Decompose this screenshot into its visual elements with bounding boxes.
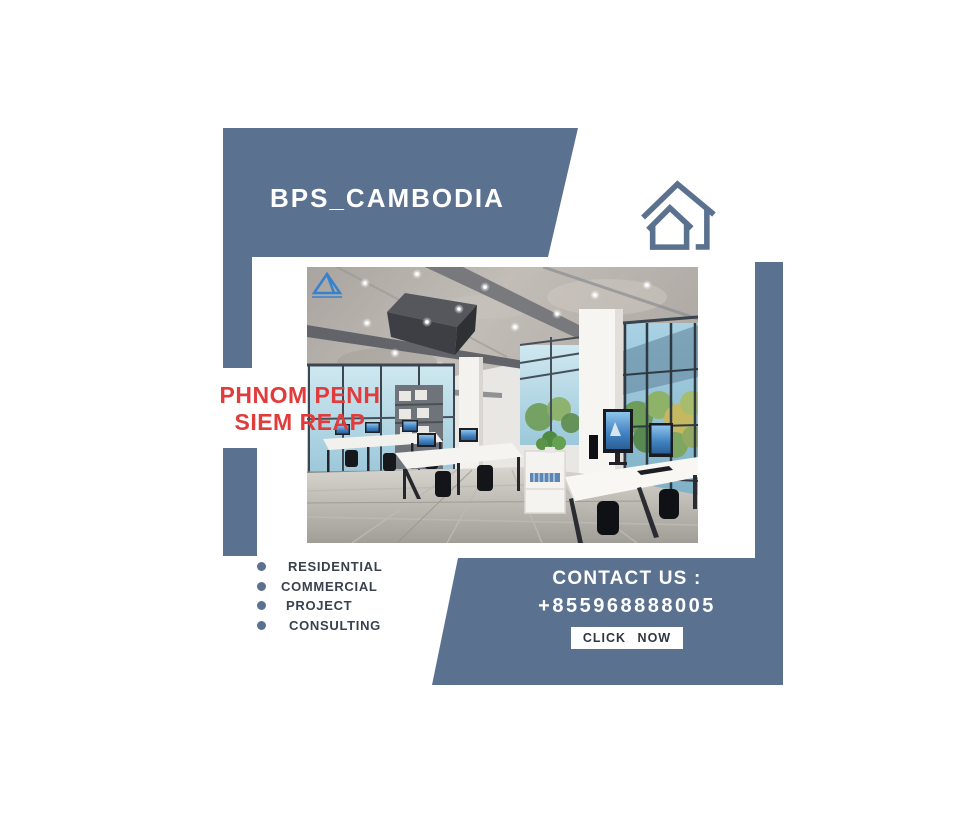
services-list: RESIDENTIAL COMMERCIAL PROJECT CONSULTIN… bbox=[250, 557, 460, 635]
bullet-dot-icon bbox=[257, 621, 266, 630]
flyer-canvas: BPS_CAMBODIA bbox=[0, 0, 979, 820]
locations-text: PHNOM PENH SIEM REAP bbox=[210, 382, 390, 436]
location-line-2: SIEM REAP bbox=[210, 409, 390, 436]
service-item-commercial: COMMERCIAL bbox=[250, 577, 460, 597]
location-line-1: PHNOM PENH bbox=[210, 382, 390, 409]
service-label: PROJECT bbox=[286, 598, 352, 613]
bullet-dot-icon bbox=[257, 582, 266, 591]
contact-heading: CONTACT US : bbox=[512, 568, 742, 590]
service-item-residential: RESIDENTIAL bbox=[250, 557, 460, 577]
service-label: COMMERCIAL bbox=[281, 579, 378, 594]
contact-panel: CONTACT US : +855968888005 CLICK NOW bbox=[432, 558, 783, 685]
brand-title: BPS_CAMBODIA bbox=[270, 183, 505, 214]
service-item-project: PROJECT bbox=[250, 596, 460, 616]
service-label: RESIDENTIAL bbox=[288, 559, 382, 574]
bullet-dot-icon bbox=[257, 562, 266, 571]
home-icon bbox=[640, 176, 717, 253]
click-now-button[interactable]: CLICK NOW bbox=[571, 627, 683, 649]
right-accent-bar bbox=[755, 262, 783, 562]
contact-phone: +855968888005 bbox=[512, 595, 742, 618]
left-accent-bar bbox=[223, 448, 257, 556]
bullet-dot-icon bbox=[257, 601, 266, 610]
service-label: CONSULTING bbox=[289, 618, 381, 633]
service-item-consulting: CONSULTING bbox=[250, 616, 460, 636]
